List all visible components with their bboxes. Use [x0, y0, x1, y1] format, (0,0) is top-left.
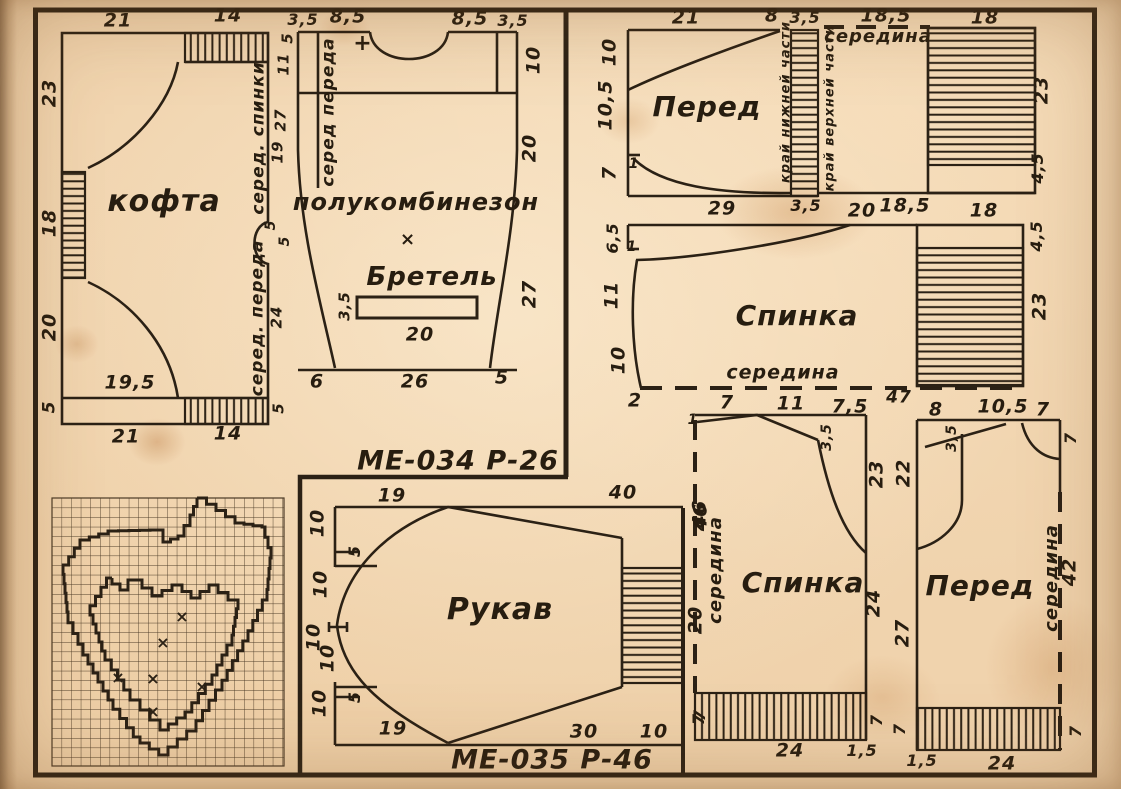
piece-name-spinka-bottom: Спинка: [742, 569, 865, 597]
piece-name-spinka-mid: Спинка: [736, 302, 859, 330]
pattern-drawing: [0, 0, 1121, 789]
dimension-label: 26: [401, 373, 429, 392]
dimension-label: 19: [379, 720, 407, 739]
dimension-label: 7: [720, 394, 734, 413]
dimension-label: 1,5: [846, 743, 877, 759]
dimension-label: 20: [521, 134, 540, 162]
dimension-label: 7: [1068, 725, 1084, 737]
dimension-label: 18,5: [861, 7, 912, 26]
dimension-label: 10: [601, 38, 620, 66]
dimension-label: 5: [278, 236, 292, 247]
dimension-label: 29: [708, 200, 736, 219]
dimension-label: 5: [347, 545, 363, 557]
dimension-label: 14: [214, 7, 242, 26]
dimension-label: 11: [277, 53, 292, 76]
dimension-label: 19,5: [105, 374, 156, 393]
stitch-mark: ×: [175, 609, 188, 625]
dimension-label: 46: [691, 500, 710, 528]
stitch-mark: ×: [156, 635, 169, 651]
dimension-label: 5: [495, 369, 509, 388]
fold-label: серед переда: [321, 37, 338, 186]
fold-label: середина: [824, 28, 932, 46]
dimension-label: 18: [971, 9, 999, 28]
dimension-label: 3,5: [790, 198, 821, 214]
stitch-mark: ×: [146, 704, 159, 720]
dimension-label: 10: [311, 689, 330, 717]
dimension-label: 5: [281, 32, 296, 43]
dimension-label: 24: [776, 742, 804, 761]
dimension-label: 19: [378, 487, 406, 506]
dimension-label: 8,5: [452, 10, 489, 29]
dimension-label: 10: [312, 570, 331, 598]
dimension-label: 3,5: [789, 10, 820, 26]
dimension-label: 7: [601, 166, 620, 180]
dimension-label: 4,5: [1030, 152, 1046, 183]
dimension-label: 3,5: [497, 13, 528, 29]
dimension-label: 10,5: [978, 398, 1029, 417]
dimension-label: 20: [687, 606, 706, 634]
dimension-label: 7: [1036, 401, 1050, 420]
dimension-label: 42: [1061, 558, 1080, 586]
dimension-label: 20: [406, 326, 434, 345]
pattern-sheet-scan: 21142318205кофта19,52114серед. спинкисер…: [0, 0, 1121, 789]
fold-label: серед. переда: [250, 240, 267, 397]
dimension-label: 7: [892, 723, 908, 735]
dimension-label: 19: [271, 141, 286, 164]
match-mark: +: [353, 33, 372, 55]
edge-label: край нижней части: [780, 21, 793, 183]
dimension-label: 23: [1033, 76, 1052, 104]
dimension-label: 10: [640, 723, 668, 742]
dimension-label: 20: [41, 313, 60, 341]
dimension-label: 3,5: [945, 424, 959, 452]
dimension-label: 27: [274, 109, 289, 132]
dimension-label: 7,5: [832, 398, 869, 417]
dimension-label: 2: [628, 392, 642, 411]
piece-name-bretel: Бретель: [366, 264, 497, 290]
dimension-label: 1,5: [906, 753, 937, 769]
match-mark: ×: [400, 231, 416, 249]
dimension-label: 40: [609, 484, 637, 503]
dimension-label: 6,5: [605, 222, 621, 253]
dimension-label: 23: [41, 79, 60, 107]
piece-name-pered-bottom: Перед: [925, 572, 1034, 600]
dimension-label: 11: [603, 281, 622, 309]
dimension-label: 10: [610, 346, 629, 374]
piece-name-polukombinezon: полукомбинезон: [293, 190, 539, 214]
dimension-label: 21: [104, 12, 132, 31]
dimension-label: 5: [272, 402, 287, 413]
dimension-label: 3,5: [287, 12, 318, 28]
dimension-label: 7: [869, 714, 885, 726]
fold-label: серед. спинки: [251, 61, 268, 214]
stitch-mark: ×: [195, 679, 208, 695]
dimension-label: 24: [865, 589, 884, 617]
dimension-label: 8,5: [330, 8, 367, 27]
dimension-label: 4,5: [1029, 220, 1045, 251]
dimension-label: 23: [1031, 292, 1050, 320]
dimension-label: 27: [894, 619, 913, 647]
dimension-label: 47: [886, 390, 912, 407]
fold-label: середина: [726, 364, 839, 383]
dimension-label: 3,5: [338, 291, 353, 321]
dimension-label: 10: [319, 644, 338, 672]
piece-name-kofta: кофта: [107, 187, 220, 217]
dimension-label: 1: [629, 157, 640, 171]
dimension-label: 18,5: [880, 197, 931, 216]
dimension-label: 1: [627, 240, 638, 254]
dimension-label: 10: [309, 509, 328, 537]
dimension-label: 30: [570, 723, 598, 742]
dimension-label: 7: [1063, 432, 1079, 444]
piece-name-pered-top: Перед: [652, 93, 761, 121]
dimension-label: 7: [692, 709, 708, 721]
dimension-label: 8: [929, 401, 943, 420]
dimension-label: 18: [970, 202, 998, 221]
stitch-mark: ×: [146, 671, 159, 687]
piece-kofta-outline: [62, 33, 268, 424]
edge-label: край верхней части: [824, 25, 837, 192]
dimension-label: 8: [765, 7, 779, 26]
sheet-code-2: МЕ-035 Р-46: [451, 747, 653, 774]
embroidery-grid-chart: [52, 498, 284, 766]
dimension-label: 24: [988, 755, 1016, 774]
dimension-label: 22: [895, 459, 914, 487]
dimension-label: 21: [112, 428, 140, 447]
dimension-label: 27: [521, 280, 540, 308]
dimension-label: 20: [848, 202, 876, 221]
sheet-code-1: МЕ-034 Р-26: [357, 448, 559, 475]
dimension-label: 14: [214, 425, 242, 444]
dimension-label: 5: [264, 220, 278, 231]
piece-name-rukav: Рукав: [447, 595, 553, 625]
dimension-label: 10,5: [597, 80, 616, 131]
dimension-label: 24: [270, 306, 285, 329]
dimension-label: 18: [41, 209, 60, 237]
dimension-label: 5: [347, 691, 363, 703]
dimension-label: 11: [777, 395, 805, 414]
dimension-label: 21: [672, 9, 700, 28]
dimension-label: 23: [868, 460, 887, 488]
dimension-label: 1: [688, 413, 699, 427]
fold-label: середина: [707, 516, 725, 624]
dimension-label: 10: [525, 46, 544, 74]
dimension-label: 5: [42, 401, 59, 414]
stitch-mark: ×: [111, 670, 124, 686]
dimension-label: 6: [310, 373, 324, 392]
dimension-label: 3,5: [820, 423, 834, 451]
